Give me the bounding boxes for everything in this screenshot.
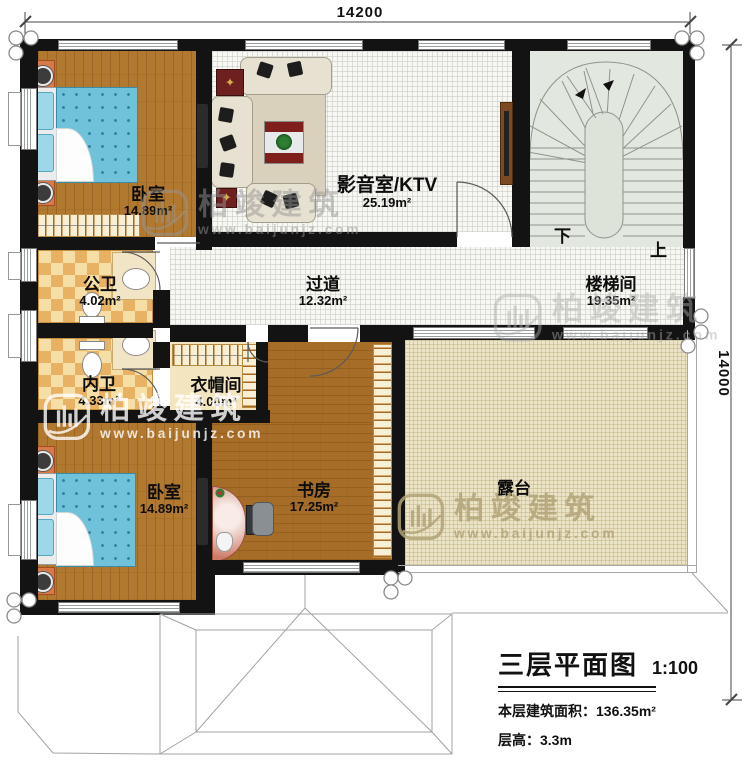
wall-hall-south: [360, 325, 392, 342]
wall-bath-divider: [20, 323, 153, 338]
flower: [214, 487, 226, 499]
wall-interior: [153, 342, 170, 368]
sink: [122, 268, 150, 290]
parapet-line: [398, 565, 697, 566]
office-chair: [252, 502, 274, 536]
speaker: [216, 188, 237, 208]
study-shelf-rail: [373, 344, 392, 558]
room-label-bedroom-bottom: 卧室14.89m²: [140, 484, 188, 515]
speaker: [216, 69, 244, 96]
parapet-line: [398, 572, 697, 573]
wall-corner: [683, 297, 695, 327]
wall-stair-east: [683, 51, 695, 248]
room-label-cloakroom: 衣帽间4.00m²: [191, 377, 242, 408]
window: [21, 88, 37, 150]
window: [21, 310, 37, 362]
title-underline: [498, 686, 656, 688]
window: [563, 327, 648, 339]
title-block: 三层平面图 1:100 本层建筑面积：136.35m² 层高：3.3m: [498, 645, 698, 750]
room-label-hallway: 过道12.32m²: [299, 276, 347, 307]
cushion: [219, 162, 235, 178]
window: [418, 40, 505, 50]
waste-bin: [216, 532, 233, 552]
wall-interior: [200, 237, 212, 250]
floor-stairs: [530, 51, 683, 248]
stair-down-label: 下: [554, 222, 571, 247]
wall-cloak-east: [256, 342, 268, 410]
window: [567, 40, 651, 50]
dimension-right: 14000: [715, 350, 732, 397]
cushion: [218, 107, 234, 123]
room-label-terrace: 露台: [497, 480, 531, 498]
wall-terrace-west: [392, 340, 405, 575]
dimension-top: 14200: [330, 4, 390, 21]
room-label-media: 影音室/KTV25.19m²: [337, 176, 437, 210]
sofa-top: [240, 57, 332, 95]
floor-area-line: 本层建筑面积：136.35m²: [498, 701, 698, 721]
window-sill: [8, 92, 21, 146]
window: [21, 500, 37, 560]
tv: [197, 104, 208, 168]
room-label-ensuite-bath: 内卫4.33m²: [78, 376, 119, 407]
window: [21, 248, 37, 282]
tv: [197, 478, 208, 545]
plan-title: 三层平面图: [498, 645, 638, 682]
room-label-study: 书房17.25m²: [290, 482, 338, 513]
window: [413, 327, 535, 339]
parapet-line: [696, 330, 697, 573]
cloak-rail: [172, 344, 250, 366]
window-sill: [8, 252, 21, 280]
window: [684, 248, 695, 298]
wall-interior: [20, 237, 155, 250]
room-label-stair-hall: 楼梯间19.35m²: [586, 276, 637, 307]
window: [245, 40, 363, 50]
plan-scale: 1:100: [652, 658, 698, 679]
window: [58, 40, 178, 50]
wall-interior: [20, 410, 270, 423]
plant: [276, 134, 292, 150]
stair-up-label: 上: [650, 236, 667, 261]
room-label-public-bath: 公卫4.02m²: [79, 276, 120, 307]
wall-interior: [212, 232, 457, 247]
window: [58, 602, 180, 613]
wall-jog: [200, 560, 215, 615]
room-label-bedroom-top: 卧室14.89m²: [124, 186, 172, 217]
floor-terrace: [405, 340, 687, 565]
floor-height-line: 层高：3.3m: [498, 730, 698, 750]
floor-plan-canvas: 卧室14.89m² 影音室/KTV25.19m² 楼梯间19.35m² 过道12…: [0, 0, 750, 766]
tv-cabinet: [500, 102, 513, 185]
window: [243, 562, 360, 573]
window-sill: [8, 314, 21, 358]
wall-stair-west: [512, 51, 530, 247]
parapet-line: [687, 330, 688, 573]
window-sill: [8, 504, 21, 556]
title-underline: [498, 691, 656, 693]
cushion: [287, 61, 304, 78]
wall-hall-south: [268, 325, 308, 342]
sofa-bottom: [246, 183, 316, 223]
wall-interior: [153, 290, 170, 328]
toilet-tank: [79, 341, 105, 350]
wall-hall-south: [170, 325, 246, 342]
